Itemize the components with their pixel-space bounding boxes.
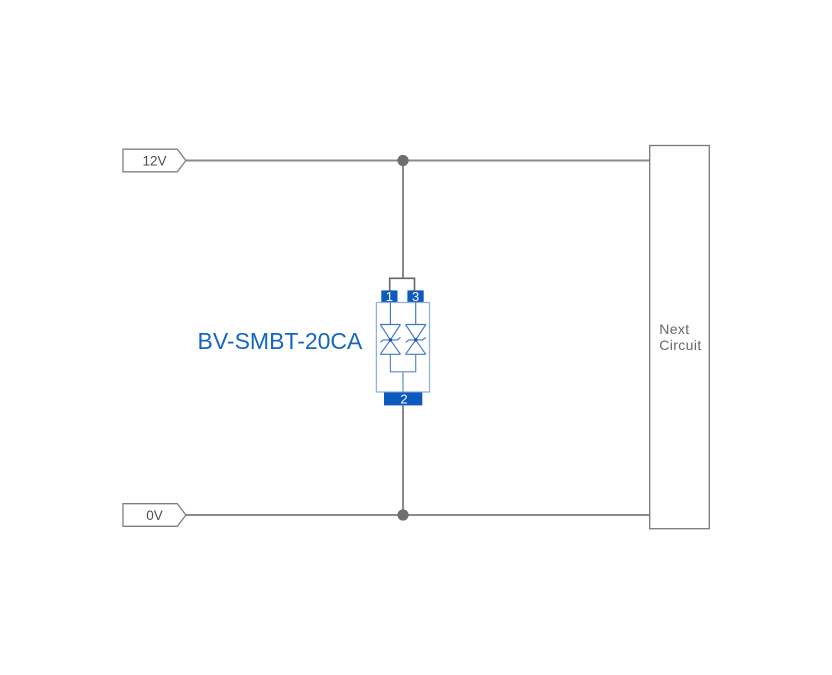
svg-text:3: 3 [412, 289, 419, 304]
svg-text:Next: Next [659, 321, 689, 337]
svg-text:12V: 12V [142, 153, 166, 168]
svg-text:0V: 0V [146, 508, 163, 523]
svg-text:BV-SMBT-20CA: BV-SMBT-20CA [198, 328, 364, 354]
svg-text:1: 1 [386, 289, 393, 304]
svg-text:2: 2 [400, 392, 407, 407]
svg-text:Circuit: Circuit [659, 337, 701, 353]
